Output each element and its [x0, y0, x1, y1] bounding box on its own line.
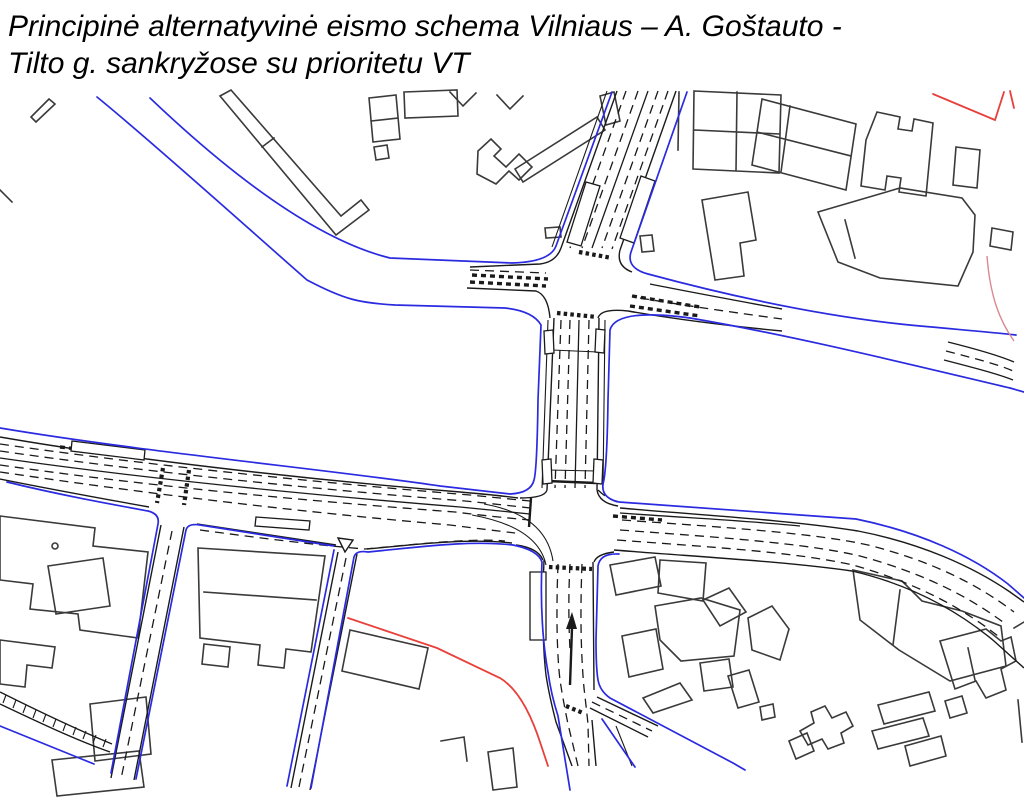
lane-line	[585, 320, 589, 488]
stop-platform	[530, 572, 546, 640]
bridge-joint	[548, 350, 598, 471]
building	[818, 188, 975, 286]
se-street-south-edge	[614, 550, 1024, 668]
lane-line	[0, 451, 530, 508]
bridge-abutment	[595, 329, 605, 353]
building	[872, 718, 929, 749]
lane-line	[575, 320, 579, 488]
building	[488, 748, 517, 790]
lane-line	[299, 558, 346, 787]
building	[655, 598, 740, 661]
lane-line	[946, 351, 1013, 371]
stop-hatch	[613, 516, 662, 520]
building	[369, 95, 400, 142]
building	[220, 90, 369, 235]
building	[700, 659, 733, 691]
crosswalk	[579, 252, 612, 258]
top-junction-corner	[470, 248, 561, 267]
building	[945, 696, 967, 718]
bridge-abutment	[544, 330, 554, 354]
red-boundary	[933, 92, 1004, 120]
blue-street-boundary	[150, 92, 612, 263]
street1-edge	[111, 525, 161, 778]
lane-line	[622, 520, 1014, 612]
building	[52, 751, 144, 796]
building	[610, 557, 661, 595]
building	[748, 606, 789, 660]
building	[477, 139, 532, 184]
building	[202, 644, 230, 667]
page: Principinė alternatyvinė eismo schema Vi…	[0, 0, 1024, 801]
building	[953, 147, 980, 188]
stop-line	[547, 481, 596, 483]
lane-line	[592, 702, 652, 731]
platforms-layer	[71, 176, 655, 640]
street1-edge	[134, 527, 184, 780]
lane-line	[470, 270, 546, 273]
crosswalk	[566, 706, 583, 713]
building	[622, 629, 663, 677]
building	[497, 95, 523, 109]
building	[0, 516, 148, 638]
building	[342, 630, 428, 689]
building	[1014, 622, 1024, 742]
building	[878, 692, 935, 724]
red-boundary	[348, 618, 548, 766]
blue-street-boundary	[596, 554, 745, 770]
building	[760, 704, 775, 720]
building	[940, 629, 1016, 698]
building	[678, 92, 679, 150]
building	[752, 99, 856, 190]
building	[728, 670, 759, 708]
building	[800, 706, 853, 749]
se-branch-edge	[597, 697, 658, 726]
turn-guide-arc	[472, 515, 546, 565]
crosswalk	[549, 567, 592, 569]
pink-boundary	[987, 256, 1014, 341]
building	[640, 235, 654, 252]
river-street-edge	[650, 284, 782, 309]
stop-hatch	[472, 275, 548, 279]
building	[703, 588, 746, 626]
lane-arrow-shaft	[570, 628, 572, 685]
building	[0, 190, 12, 202]
building	[990, 228, 1013, 250]
lane-line	[569, 564, 570, 650]
blue-street-boundary	[602, 719, 635, 767]
stop-hatch	[632, 296, 700, 307]
building	[789, 733, 814, 759]
building	[693, 91, 781, 173]
building	[702, 192, 756, 280]
sw-lane-ticks	[3, 695, 106, 747]
lane-line	[557, 564, 578, 766]
top-junction-corner	[467, 288, 550, 318]
lane-line	[565, 320, 570, 488]
building	[441, 737, 467, 761]
red-boundaries-layer	[348, 91, 1014, 766]
street2-island	[338, 538, 353, 552]
river-street-edge	[948, 342, 1014, 362]
top-junction-corner	[598, 310, 628, 318]
red-boundary	[1010, 91, 1014, 108]
lane-line	[555, 320, 561, 488]
lane-line	[0, 458, 530, 514]
blue-street-boundary	[603, 315, 1024, 598]
north-street-edge	[561, 91, 617, 248]
building	[48, 558, 110, 614]
building	[404, 90, 458, 118]
south-street-east-edge	[592, 562, 596, 766]
bridge-abutment	[542, 459, 552, 484]
building	[658, 560, 706, 601]
building	[643, 683, 692, 713]
lane-arrow-head	[566, 612, 577, 629]
building	[198, 548, 325, 668]
building	[374, 145, 389, 160]
lane-line	[581, 564, 589, 766]
blue-street-boundary	[630, 92, 1016, 335]
crosswalk	[157, 468, 163, 503]
bridge-abutment	[593, 459, 603, 484]
traffic-scheme-map	[0, 0, 1024, 801]
building	[450, 92, 476, 106]
building	[52, 543, 58, 549]
stop-platform	[255, 517, 310, 530]
stop-hatch	[470, 282, 546, 286]
blue-street-boundary	[287, 550, 334, 786]
building	[861, 112, 933, 196]
building	[0, 640, 55, 687]
building	[31, 99, 55, 122]
crosswalk	[557, 313, 597, 317]
street2-edge	[291, 552, 338, 788]
river-street-edge	[944, 360, 1013, 380]
blue-street-boundary	[0, 726, 94, 764]
